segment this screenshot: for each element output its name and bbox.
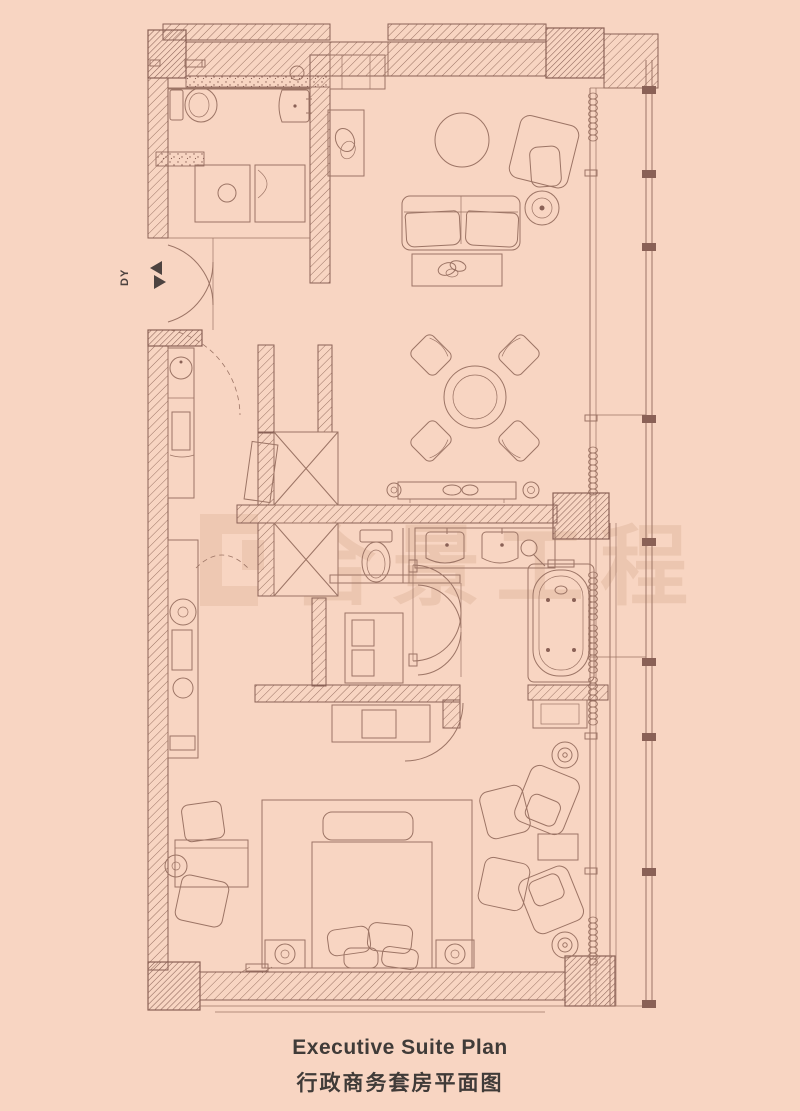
decor-shell: [332, 125, 358, 161]
toilet-icon: [170, 88, 217, 122]
living-room: [328, 55, 581, 286]
ottoman-2: [477, 856, 532, 913]
entry-jamb-block: [148, 330, 202, 346]
sofa: [402, 196, 520, 250]
coffee-table-decor: [437, 259, 467, 277]
top-wall-finish: [186, 76, 330, 87]
ottoman-1: [478, 783, 532, 840]
desk-chair-2: [174, 874, 231, 929]
desk-chair-1: [181, 800, 226, 842]
bedroom-wall: [255, 685, 460, 702]
floor-plan-drawing: 合景工程: [0, 0, 800, 1111]
entry-direction-icon: [150, 261, 166, 289]
dining-area: [387, 332, 542, 503]
plan-title-zh: 行政商务套房平面图: [0, 1067, 800, 1097]
bottom-left-column: [148, 962, 200, 1010]
round-table: [435, 113, 489, 167]
pantry-sink-icon: [170, 357, 192, 379]
bedroom: [165, 700, 587, 970]
lounge-corner: [477, 742, 587, 958]
lounge-chair-2: [516, 863, 587, 937]
bed-pillows: [326, 922, 419, 971]
dining-chair-2: [496, 332, 541, 377]
sink-icon: [279, 90, 312, 122]
entry-door-arc-2: [168, 262, 213, 322]
corridor-wall-end-block: [553, 493, 609, 539]
window-desk: [533, 700, 587, 728]
bed: [312, 812, 432, 970]
duct-shaft-2: [274, 523, 338, 596]
coffee-table: [412, 254, 502, 286]
core-wall-b: [318, 345, 332, 432]
bed-bench: [323, 812, 413, 840]
plan-title: Executive Suite Plan 行政商务套房平面图: [0, 1036, 800, 1097]
vanity-desk: [195, 165, 250, 222]
closet-wall: [312, 598, 326, 686]
top-left-column: [148, 30, 186, 78]
side-ring-table: [525, 191, 559, 225]
top-right-column: [546, 28, 604, 78]
dining-chair-4: [496, 418, 541, 463]
dining-chair-3: [408, 418, 453, 463]
burner-icon-2: [173, 678, 193, 698]
top-parapet-right: [388, 24, 546, 40]
floor-lamp-icon-2: [552, 932, 578, 958]
top-right-corner: [604, 34, 658, 88]
interior-walls: [156, 55, 609, 728]
lounge-side-table: [538, 834, 578, 860]
entry-door-arc-1: [168, 245, 213, 305]
window-desk-wall: [528, 685, 608, 700]
bedroom-door-jamb: [443, 700, 460, 728]
floor-plan-page: 合景工程: [0, 0, 800, 1111]
burner-icon-1: [170, 599, 196, 625]
armchair-1: [506, 113, 581, 195]
duct-shaft-1: [274, 432, 338, 505]
top-wall: [186, 42, 546, 76]
bathroom1-wall: [310, 55, 330, 283]
stool-icon: [218, 184, 236, 202]
plan-title-en: Executive Suite Plan: [0, 1036, 800, 1060]
floor-lamp-icon-1: [552, 742, 578, 768]
nightstand-left: [265, 940, 305, 968]
tv-console: [332, 705, 430, 742]
left-wall-lower: [148, 346, 168, 970]
corridor-wall: [237, 505, 557, 523]
dressing-area: [195, 165, 305, 222]
bottom-wall: [200, 972, 565, 1000]
shaft2-wall: [258, 523, 274, 596]
side-table: [328, 110, 364, 176]
writing-desk: [165, 800, 248, 928]
entry-label: DY: [119, 269, 131, 286]
sideboard: [387, 482, 539, 503]
nightstand-right: [436, 940, 474, 968]
bathroom1-stub: [156, 152, 204, 166]
top-parapet-left: [163, 24, 330, 40]
dining-chair-1: [408, 332, 453, 377]
core-wall-a: [258, 345, 274, 433]
lounge-chair-1: [512, 762, 583, 837]
